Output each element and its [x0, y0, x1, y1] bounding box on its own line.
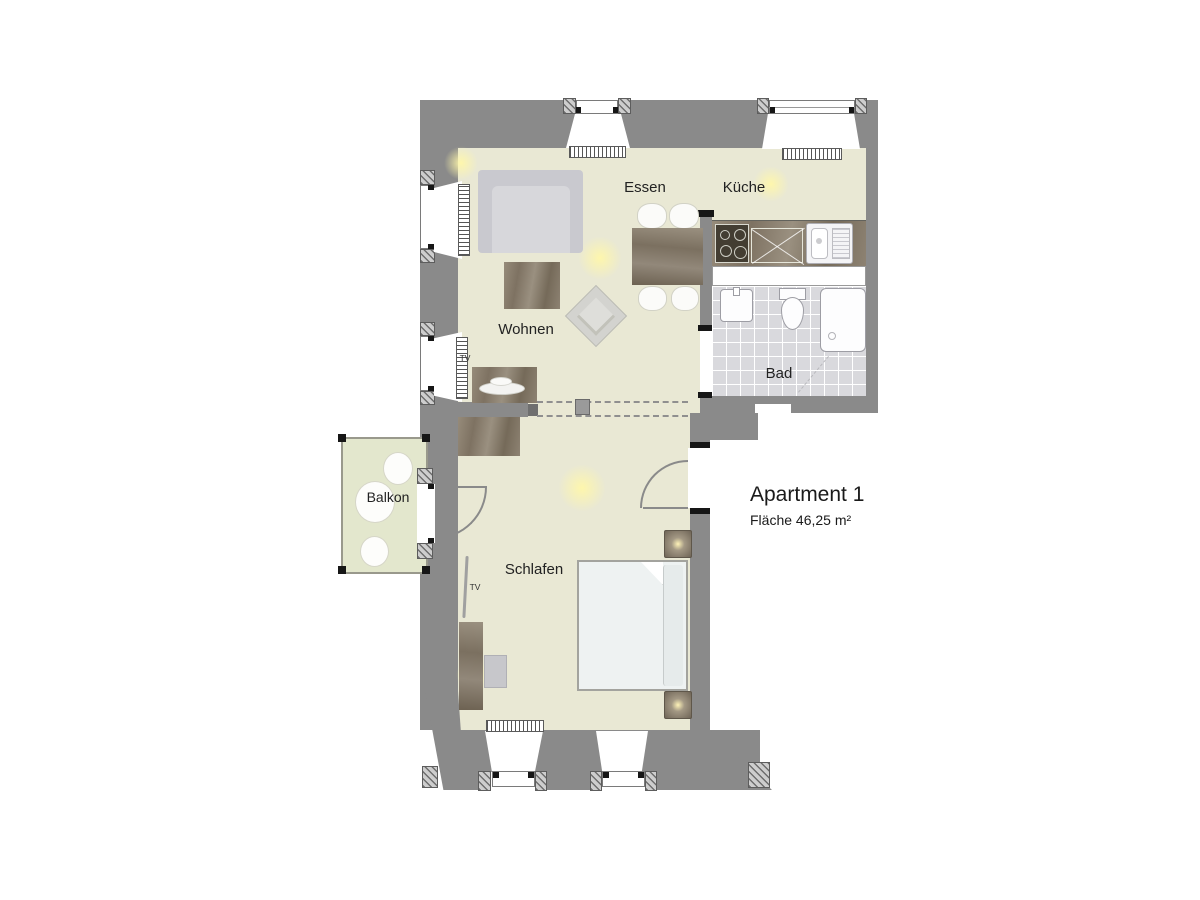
lintel-cap — [690, 508, 710, 514]
tv-label-bedroom: TV — [466, 582, 484, 592]
wardrobe — [458, 417, 520, 456]
window-frame-end — [428, 244, 434, 249]
lintel-cap — [698, 392, 712, 398]
window-frame-end — [576, 107, 581, 113]
light-glow — [444, 146, 478, 180]
window-jamb — [478, 771, 491, 791]
balcony-door-opening — [417, 484, 435, 543]
burner — [734, 229, 746, 241]
lintel-cap — [698, 210, 714, 217]
window-jamb — [618, 98, 631, 114]
door-frame-end — [428, 484, 434, 489]
window-frame-end — [613, 107, 618, 113]
dining-table — [632, 228, 703, 285]
window-frame-line — [769, 107, 855, 108]
wall-living-stub — [424, 402, 528, 417]
corner-hatch — [748, 762, 770, 788]
room-label-dining: Essen — [615, 179, 675, 196]
dining-chair — [637, 203, 667, 229]
window-frame-end — [638, 772, 644, 778]
lounge-chair-seat — [577, 298, 615, 336]
corner-hatch — [422, 766, 438, 788]
window-jamb — [420, 322, 435, 336]
tv-living-top — [490, 377, 512, 386]
wall-bottom-pier-3 — [657, 772, 702, 790]
wall-right — [866, 148, 878, 413]
entry-door-opening — [688, 448, 712, 508]
window-jamb — [757, 98, 769, 114]
shower — [820, 288, 866, 352]
sink-faucet — [816, 238, 822, 244]
wall-entry-stub — [690, 413, 758, 440]
bath-door-opening — [700, 331, 712, 392]
window-jamb — [855, 98, 867, 114]
radiator — [569, 146, 626, 158]
window-jamb — [535, 771, 547, 791]
room-label-bedroom: Schlafen — [500, 561, 568, 578]
window-frame-end — [528, 772, 534, 778]
kitchen-sink — [806, 223, 853, 264]
burner — [734, 246, 747, 259]
balcony-post — [422, 566, 430, 574]
coffee-table — [504, 262, 560, 309]
burner — [720, 230, 730, 240]
dining-chair — [669, 203, 699, 229]
door-jamb — [417, 468, 433, 484]
balcony-post — [338, 434, 346, 442]
column — [575, 399, 590, 415]
balcony-post — [422, 434, 430, 442]
window-jamb — [563, 98, 576, 114]
window-left-1 — [420, 185, 435, 249]
window-frame-end — [428, 336, 434, 341]
window-reveal — [596, 731, 648, 772]
cabinet-x-line — [751, 229, 804, 265]
bath-mat — [755, 404, 791, 413]
duvet-fold — [641, 562, 663, 585]
window-jamb — [420, 391, 435, 405]
window-frame-end — [603, 772, 609, 778]
window-jamb — [420, 170, 435, 185]
light-glow — [578, 236, 622, 280]
shower-drain — [828, 332, 836, 340]
window-jamb — [420, 249, 435, 263]
stool — [484, 655, 507, 688]
room-label-bath: Bad — [759, 365, 799, 382]
apartment-title: Apartment 1 — [750, 483, 864, 507]
radiator — [458, 184, 470, 256]
window-reveal — [566, 114, 630, 148]
sink-drainer — [832, 228, 850, 259]
door-frame-end — [428, 538, 434, 543]
window-reveal — [762, 114, 860, 149]
nightstand — [664, 691, 692, 719]
radiator — [486, 720, 544, 732]
room-label-balcony: Balkon — [360, 489, 416, 505]
radiator — [782, 148, 842, 160]
pillow — [663, 565, 683, 686]
window-frame-end — [770, 107, 775, 113]
room-label-living: Wohnen — [493, 321, 559, 338]
dining-chair — [671, 286, 699, 311]
window-frame-end — [428, 185, 434, 190]
stove — [715, 224, 749, 263]
bath-sink-faucet — [733, 287, 740, 296]
window-reveal — [485, 731, 543, 772]
light-glow — [558, 464, 606, 512]
bed — [577, 560, 688, 691]
burner — [720, 245, 732, 257]
room-label-kitchen: Küche — [714, 179, 774, 196]
door-jamb — [417, 543, 433, 559]
beam-dashed-line — [537, 401, 688, 403]
window-top-living — [576, 100, 618, 114]
wall-bottom-pier-1 — [458, 772, 478, 790]
sofa-seat — [492, 186, 570, 253]
dining-chair — [638, 286, 667, 311]
cabinet-x — [751, 228, 803, 263]
wall-bottom-pier-2 — [547, 772, 590, 790]
floor-plan: Essen Küche Wohnen Bad Balkon Schlafen T… — [0, 0, 1200, 900]
window-jamb — [590, 771, 602, 791]
window-frame-end — [428, 386, 434, 391]
radiator — [456, 337, 468, 399]
window-left-2 — [420, 336, 435, 391]
nightstand — [664, 530, 692, 558]
window-jamb — [645, 771, 657, 791]
dresser — [459, 622, 483, 710]
window-frame-end — [493, 772, 499, 778]
bath-niche — [712, 266, 866, 286]
balcony-chair — [383, 452, 413, 485]
sofa — [478, 170, 583, 253]
beam-dashed-line — [537, 415, 688, 417]
balcony-chair — [360, 536, 389, 567]
tv-label-living: TV — [456, 353, 474, 363]
apartment-area: Fläche 46,25 m² — [750, 512, 851, 528]
balcony-post — [338, 566, 346, 574]
window-frame-end — [849, 107, 854, 113]
